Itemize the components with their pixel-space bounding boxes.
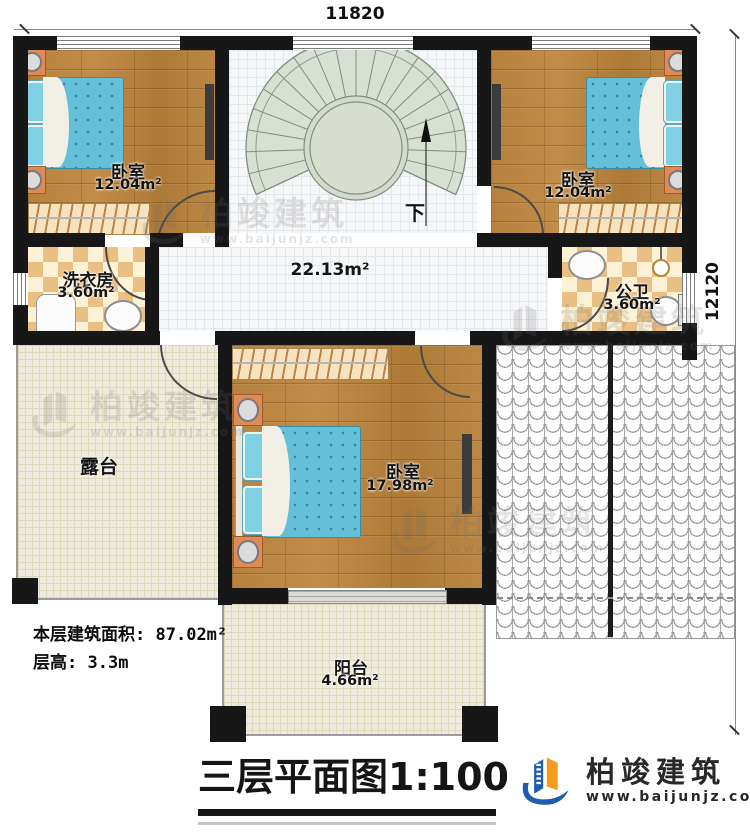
top-dimension-line bbox=[14, 29, 697, 30]
bed-sheet bbox=[639, 77, 665, 167]
floor-area-note: 本层建筑面积: 87.02m² bbox=[33, 620, 227, 645]
roof-area bbox=[496, 345, 735, 639]
wall-segment bbox=[150, 233, 183, 247]
wardrobe bbox=[558, 203, 684, 235]
right-dimension-line bbox=[735, 36, 736, 735]
terrace-corner-pillar bbox=[12, 578, 38, 604]
title-rule-thin bbox=[198, 822, 496, 825]
tv-panel bbox=[205, 84, 214, 160]
wall-segment bbox=[13, 233, 105, 247]
room-area-balcony: 4.66m² bbox=[321, 673, 378, 689]
floor-height-note: 层高: 3.3m bbox=[33, 648, 128, 673]
brand-footer: 柏竣建筑 www.baijunjz.com bbox=[514, 752, 750, 810]
window bbox=[13, 273, 28, 305]
balcony-pillar bbox=[462, 706, 498, 742]
room-area-hall: 22.13m² bbox=[291, 260, 370, 280]
floor-height-value: 3.3m bbox=[88, 653, 129, 673]
lamp-icon bbox=[237, 540, 259, 564]
right-dimension-label: 12120 bbox=[703, 262, 723, 321]
wall-segment bbox=[180, 36, 293, 50]
wall-segment bbox=[215, 36, 229, 233]
wardrobe bbox=[28, 203, 150, 235]
nightstand bbox=[233, 394, 263, 426]
wall-segment bbox=[470, 331, 697, 345]
wall-segment bbox=[215, 233, 229, 247]
room-area-bedroom-main: 17.98m² bbox=[366, 478, 433, 494]
bed-main bbox=[235, 424, 359, 540]
drawing-title-scale: 1:100 bbox=[388, 755, 509, 799]
window bbox=[57, 36, 180, 50]
drawing-title: 三层平面图1:100 bbox=[198, 746, 496, 801]
bed-top-right bbox=[586, 76, 690, 168]
bed-sheet bbox=[262, 426, 290, 536]
drawing-title-block: 三层平面图1:100 bbox=[198, 746, 496, 825]
wall-segment bbox=[218, 588, 288, 604]
room-label-terrace: 露台 bbox=[80, 452, 118, 479]
window bbox=[532, 36, 650, 50]
stair-down-label: 下 bbox=[405, 197, 425, 226]
room-area-bedroom-top-left: 12.04m² bbox=[94, 177, 161, 193]
brand-logo-icon bbox=[514, 752, 576, 810]
floor-area-value: 87.02m² bbox=[156, 625, 228, 645]
spiral-staircase bbox=[229, 36, 477, 234]
tv-panel bbox=[462, 434, 472, 514]
wall-segment bbox=[548, 247, 562, 278]
brand-name: 柏竣建筑 bbox=[586, 757, 750, 789]
floor-plan-canvas: 11820 12120 下 bbox=[0, 0, 750, 833]
tv-panel bbox=[492, 84, 501, 160]
roof-eave-dashed-line bbox=[497, 597, 733, 599]
room-area-laundry: 3.60m² bbox=[57, 285, 114, 301]
wall-segment bbox=[145, 247, 159, 331]
room-area-bedroom-top-right: 12.04m² bbox=[544, 185, 611, 201]
top-dimension-label: 11820 bbox=[325, 4, 384, 24]
wall-segment bbox=[218, 337, 232, 605]
window bbox=[293, 36, 413, 50]
laundry-sink bbox=[104, 300, 142, 332]
wall-segment bbox=[215, 331, 232, 345]
lamp-icon bbox=[237, 398, 259, 422]
pendant-lamp-icon bbox=[652, 259, 670, 277]
floor-height-label: 层高: bbox=[33, 653, 77, 673]
wall-segment bbox=[445, 588, 496, 604]
balcony-pillar bbox=[210, 706, 246, 742]
wall-segment bbox=[650, 36, 697, 50]
nightstand bbox=[233, 536, 263, 568]
roof-ridge-line bbox=[608, 345, 613, 637]
floor-area-label: 本层建筑面积: bbox=[33, 625, 145, 645]
wall-segment bbox=[477, 36, 491, 186]
wardrobe bbox=[232, 348, 389, 380]
bed-top-left bbox=[18, 76, 122, 168]
title-rule-thick bbox=[198, 809, 496, 816]
window bbox=[682, 273, 697, 323]
room-area-bathroom: 3.60m² bbox=[603, 297, 660, 313]
wall-segment bbox=[494, 233, 697, 247]
bed-sheet bbox=[43, 77, 69, 167]
wall-segment bbox=[477, 233, 494, 247]
wall-segment bbox=[482, 337, 496, 605]
wall-segment bbox=[13, 36, 57, 50]
drawing-title-name: 三层平面图 bbox=[198, 755, 388, 799]
bathroom-sink bbox=[568, 250, 606, 280]
sliding-door-balcony bbox=[288, 590, 447, 604]
wall-segment bbox=[232, 331, 415, 345]
wall-segment bbox=[413, 36, 532, 50]
brand-url: www.baijunjz.com bbox=[586, 789, 750, 805]
bed-headboard bbox=[235, 424, 243, 542]
wall-segment bbox=[13, 331, 160, 345]
